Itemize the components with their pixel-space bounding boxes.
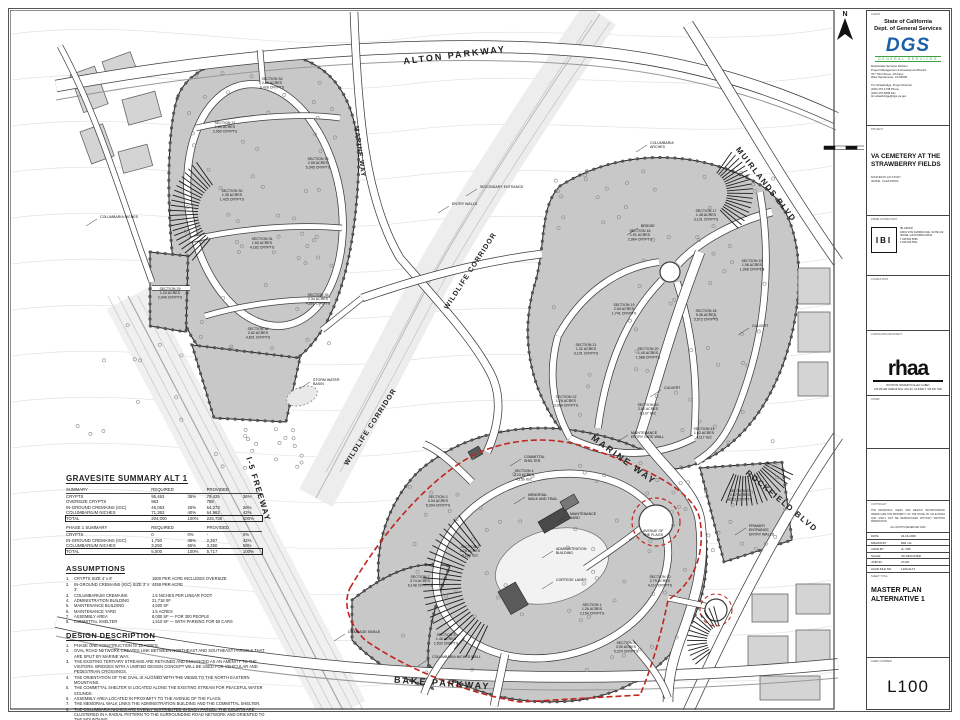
section-label: SECTION 21.76 ACRES3,104 IGC bbox=[460, 545, 481, 557]
address-line: West Sacramento, CA 95605 bbox=[871, 76, 945, 80]
section-label: SECTION 83.00 ACRES5,224 CRYPTS bbox=[614, 641, 639, 653]
callout-label: COLUMBARIAARCHES bbox=[650, 141, 674, 149]
section-label: SECTION 221.76 ACRES3,064 CRYPTS bbox=[554, 395, 579, 407]
client-contact: Tim Strawbridge, Project Director(916) 3… bbox=[871, 84, 945, 99]
rhaa-logo-bar bbox=[873, 380, 943, 383]
box-label: SHEET TITLE bbox=[871, 575, 945, 578]
project-subtitle: MASTER PLAN STUDY IRVINE, CALIFORNIA bbox=[871, 176, 945, 184]
columbaria-fan bbox=[687, 635, 707, 638]
tree-dot bbox=[711, 549, 714, 552]
field-row: DATE04-16-2009 bbox=[867, 533, 949, 540]
section-label: SECTION 102.79 ACRES4,117 CRYPTS bbox=[648, 575, 673, 587]
callout-leader bbox=[334, 634, 345, 641]
callout-label: SECONDARY ENTRANCE bbox=[480, 185, 524, 189]
north-arrow bbox=[837, 18, 853, 40]
tree-dot bbox=[255, 442, 258, 445]
dgs-logo-subtext: GENERAL SERVICES bbox=[875, 56, 941, 62]
project-title: VA CEMETERY AT THE STRAWBERRY FIELDS bbox=[871, 153, 945, 170]
context-building bbox=[118, 144, 153, 173]
design-description-list: PHASE ONE CONSTRUCTION IS 15 ACRES.OVAL … bbox=[66, 643, 272, 720]
context-building bbox=[752, 594, 788, 622]
callout-leader bbox=[636, 145, 647, 152]
box-label: COPYRIGHT bbox=[871, 503, 945, 506]
copyright-box: COPYRIGHT THE DRAWINGS, IDEAS AND DESIGN… bbox=[867, 501, 949, 533]
callout-label: ENTRY WALLS bbox=[452, 202, 478, 206]
sheet-title-box: SHEET TITLE MASTER PLAN ALTERNATIVE 1 bbox=[867, 573, 949, 658]
list-item: THE COMMITTAL SHELTER IS LOCATED ALONG T… bbox=[66, 685, 272, 696]
prime-consultant-box: PRIME CONSULTANT IBI IBI GROUP18401 VON … bbox=[867, 216, 949, 276]
dgs-logo: DGS bbox=[871, 36, 945, 55]
section-label: SECTION 171.48 ACRES3,131 CRYPTS bbox=[694, 209, 719, 221]
box-label: STAMP bbox=[871, 398, 945, 401]
tree-dot bbox=[89, 432, 92, 435]
tree-dot bbox=[274, 428, 277, 431]
rhaa-info: ROYSTON HANAMOTO ALLEY & ABEY225 MILLER … bbox=[871, 384, 945, 391]
section-label: SECTION 73.74 ACRES6,148 CRYPTS bbox=[408, 575, 433, 587]
copyright-line: ALL RIGHTS RESERVED 2009 bbox=[871, 526, 945, 529]
callout-label: CULVERT bbox=[752, 324, 769, 328]
summary-table: SUMMARY REQUIRED PROVIDED CRYPTS95,46335… bbox=[66, 487, 262, 521]
contact-line: tim.strawbridge@dgs.ca.gov bbox=[871, 95, 945, 99]
summary-title: GRAVESITE SUMMARY ALT 1 bbox=[66, 474, 188, 484]
section-label: SECTION 301.35 ACRES1,425 CRYPTS bbox=[220, 189, 245, 201]
field-row: SCALEAS INDICATED bbox=[867, 553, 949, 560]
callout-label: CULVERT bbox=[664, 386, 681, 390]
context-building bbox=[122, 91, 162, 125]
project-subtitle-line: IRVINE, CALIFORNIA bbox=[871, 180, 945, 184]
graphic-scale bbox=[835, 146, 846, 150]
sheet-title: MASTER PLAN ALTERNATIVE 1 bbox=[871, 586, 945, 605]
tree-dot bbox=[284, 436, 287, 439]
ibi-logo: IBI bbox=[871, 227, 897, 253]
field-row: ACAD FILE NO.L100-ALT1 bbox=[867, 566, 949, 573]
phase1-table: PHASE 1 SUMMARY REQUIRED PROVIDED CRYPTS… bbox=[66, 525, 262, 554]
box-label: SHEET NUMBER bbox=[871, 660, 945, 663]
section-label: SECTION 402.62 ACRES6,107 IGC bbox=[638, 403, 659, 415]
tree-dot bbox=[554, 179, 557, 182]
field-row: CHKD BYJL / RB bbox=[867, 546, 949, 553]
section-label: SECTION 51.46 ACRES2,532 CRYPTS bbox=[434, 633, 459, 645]
tree-dot bbox=[251, 449, 254, 452]
tree-dot bbox=[244, 434, 247, 437]
context-building bbox=[748, 636, 788, 666]
section-label: SECTION 11.26 ACRES2,154 CRYPTS bbox=[580, 603, 605, 615]
section-label: SECTION 291.24 ACRES2,040 CRYPTS bbox=[158, 287, 183, 299]
section-label: SECTION 362.62 ACRES4,601 CRYPTS bbox=[246, 327, 271, 339]
sheet-title-line: ALTERNATIVE 1 bbox=[871, 595, 945, 604]
section-label: SECTION 161.91 ACRES2,964 CRYPTS bbox=[628, 229, 653, 241]
tree-dot bbox=[772, 177, 775, 180]
callout-label: CORTEGE LANES bbox=[556, 578, 587, 582]
callout-label: COLUMBARIA NICHES bbox=[100, 215, 139, 219]
info-line: 225 MILLER AVENUE MILL VALLEY, CA 94941 … bbox=[871, 388, 945, 391]
context-building bbox=[760, 676, 820, 700]
callout-label: BRIDGE bbox=[641, 224, 655, 228]
sheet-number: L100 bbox=[871, 677, 945, 697]
project-box: PROJECT VA CEMETERY AT THE STRAWBERRY FI… bbox=[867, 126, 949, 216]
section-label: SECTION 352.34 ACRES4,861 CRYPTS bbox=[306, 293, 331, 305]
callout-leader bbox=[86, 219, 97, 226]
north-label: N bbox=[842, 11, 847, 18]
section-label: SECTION 341.60 ACRES4,182 CRYPTS bbox=[250, 237, 275, 249]
contour-line bbox=[12, 28, 832, 43]
stamp-box-2 bbox=[867, 449, 949, 501]
tree-dot bbox=[292, 437, 295, 440]
tree-dot bbox=[246, 438, 249, 441]
section-label: SECTION 322.46 ACRES6,428 CRYPTS bbox=[260, 77, 285, 89]
box-label: LANDSCAPE ARCHITECT bbox=[871, 333, 945, 336]
context-building bbox=[798, 268, 830, 304]
tree-dot bbox=[136, 400, 139, 403]
list-item: THE COLUMBARIA NICHES ARE EVENLY DISTRIB… bbox=[66, 707, 272, 720]
section-label: SECTION 211.32 ACRES3,191 CRYPTS bbox=[574, 343, 599, 355]
tree-dot bbox=[707, 534, 710, 537]
client-name: State of California Dept. of General Ser… bbox=[871, 19, 945, 33]
info-line: F 949 833 5511 bbox=[900, 241, 943, 245]
context-building bbox=[798, 362, 828, 396]
gravesite-summary-panel: GRAVESITE SUMMARY ALT 1 SUMMARY REQUIRED… bbox=[66, 468, 262, 720]
tree-dot bbox=[300, 454, 303, 457]
copyright-text: THE DRAWINGS, IDEAS AND DESIGN INCORPORA… bbox=[871, 509, 945, 524]
section-label: SECTION 192.54 ACRES1,741 CRYPTS bbox=[612, 303, 637, 315]
tree-dot bbox=[327, 342, 330, 345]
tree-dot bbox=[771, 440, 774, 443]
context-building bbox=[796, 584, 830, 614]
list-item: COMMITTAL SHELTER1,510 SF — WITH PARKING… bbox=[66, 619, 262, 624]
columbaria-fan bbox=[688, 645, 707, 650]
client-line: State of California bbox=[871, 19, 945, 26]
context-building bbox=[796, 630, 830, 664]
section-label: SECTION 201.40 ACRES1,588 CRYPTS bbox=[636, 347, 661, 359]
graphic-scale bbox=[857, 146, 864, 150]
callout-leader bbox=[438, 206, 449, 213]
consultant-box: CONSULTANT bbox=[867, 276, 949, 331]
section-label: SECTION 185.36 ACRES5,573 CRYPTS bbox=[694, 309, 719, 321]
section-label: SECTION 33.04 ACRES5,004 CRYPTS bbox=[426, 495, 451, 507]
assumptions-list: CRYPTS SIZE 4' x 8'1500 PER ACRE INCLUDE… bbox=[66, 576, 262, 625]
landscape-architect-box: LANDSCAPE ARCHITECT rhaa ROYSTON HANAMOT… bbox=[867, 331, 949, 396]
section-label: SECTION 411.62 ACRES4,117 IGC bbox=[694, 427, 715, 439]
tree-dot bbox=[278, 441, 281, 444]
callout-label: AVENUE OFTHE FLAGS bbox=[643, 529, 664, 537]
field-rows: DATE04-16-2009 DRAWN BYMW / AL CHKD BYJL… bbox=[867, 533, 949, 573]
tree-dot bbox=[291, 429, 294, 432]
tree-dot bbox=[686, 481, 689, 484]
section-label: SECTION 311.80 ACRES2,950 CRYPTS bbox=[213, 121, 238, 133]
tree-dot bbox=[102, 429, 105, 432]
box-label: CONSULTANT bbox=[871, 278, 945, 281]
list-item: OVAL ROAD NETWORK CREATES LINK BETWEEN N… bbox=[66, 648, 272, 659]
box-label: CLIENT bbox=[871, 13, 945, 16]
field-row: JOB NO.27143 bbox=[867, 559, 949, 566]
columbaria-fan bbox=[687, 643, 707, 645]
stamp-box-1: STAMP bbox=[867, 396, 949, 449]
tree-dot bbox=[274, 458, 277, 461]
client-box: CLIENT State of California Dept. of Gene… bbox=[867, 11, 949, 126]
callout-label: STORM WATERBASIN bbox=[313, 378, 340, 386]
design-description-title: DESIGN DESCRIPTION bbox=[66, 631, 155, 641]
list-item: THE EXISTING TERTIARY STREAMS ARE RETAIN… bbox=[66, 659, 272, 675]
assumptions-title: ASSUMPTIONS bbox=[66, 564, 125, 574]
title-block: CLIENT State of California Dept. of Gene… bbox=[866, 10, 950, 710]
tree-dot bbox=[300, 461, 303, 464]
client-address: Real Estate Services DivisionProject Man… bbox=[871, 65, 945, 80]
tree-dot bbox=[293, 444, 296, 447]
ibi-info: IBI GROUP18401 VON KARMAN AVE, SUITE 110… bbox=[900, 227, 943, 253]
box-label: PRIME CONSULTANT bbox=[871, 218, 945, 221]
drawing-sheet: ALTON PARKWAYMARINE WAYWILDLIFE CORRIDOR… bbox=[0, 0, 960, 720]
context-building bbox=[798, 312, 830, 352]
phase1-total-row: TOTAL5,000 100%5,717 100% bbox=[66, 549, 262, 555]
list-item: IN-GROUND CREMAINS (IGC) SIZE 3' x 3'445… bbox=[66, 582, 262, 593]
client-line: Dept. of General Services bbox=[871, 26, 945, 33]
section-label: SECTION 232.87 ACRES4,311 CRYPTS bbox=[728, 489, 753, 501]
tree-dot bbox=[244, 428, 247, 431]
tree-dot bbox=[102, 359, 105, 362]
graphic-scale bbox=[846, 146, 857, 150]
callout-label: COLUMBARIA NICHES WALL bbox=[432, 655, 481, 659]
sheet-number-box: SHEET NUMBER L100 bbox=[867, 658, 949, 706]
section-label: SECTION 332.05 ACRES5,345 CRYPTS bbox=[306, 157, 331, 169]
section-label: SECTION 42.23 ACRES4,150 IGC bbox=[514, 469, 535, 481]
rhaa-logo: rhaa bbox=[871, 360, 945, 379]
list-item: THE ORIENTATION OF THE OVAL IS ALIGNED W… bbox=[66, 675, 272, 686]
sheet-title-line: MASTER PLAN bbox=[871, 586, 945, 595]
tree-dot bbox=[296, 465, 299, 468]
box-label: PROJECT bbox=[871, 128, 945, 131]
callout-label: DRAINAGE SWALE bbox=[348, 630, 381, 634]
field-row: DRAWN BYMW / AL bbox=[867, 540, 949, 547]
summary-total-row: TOTAL204,000 100%225,730 100% bbox=[66, 516, 262, 522]
tree-dot bbox=[76, 425, 79, 428]
section-label: SECTION 151.06 ACRES1,908 CRYPTS bbox=[740, 259, 765, 271]
ne-roundabout bbox=[660, 262, 680, 282]
graphic-scale bbox=[824, 146, 835, 150]
